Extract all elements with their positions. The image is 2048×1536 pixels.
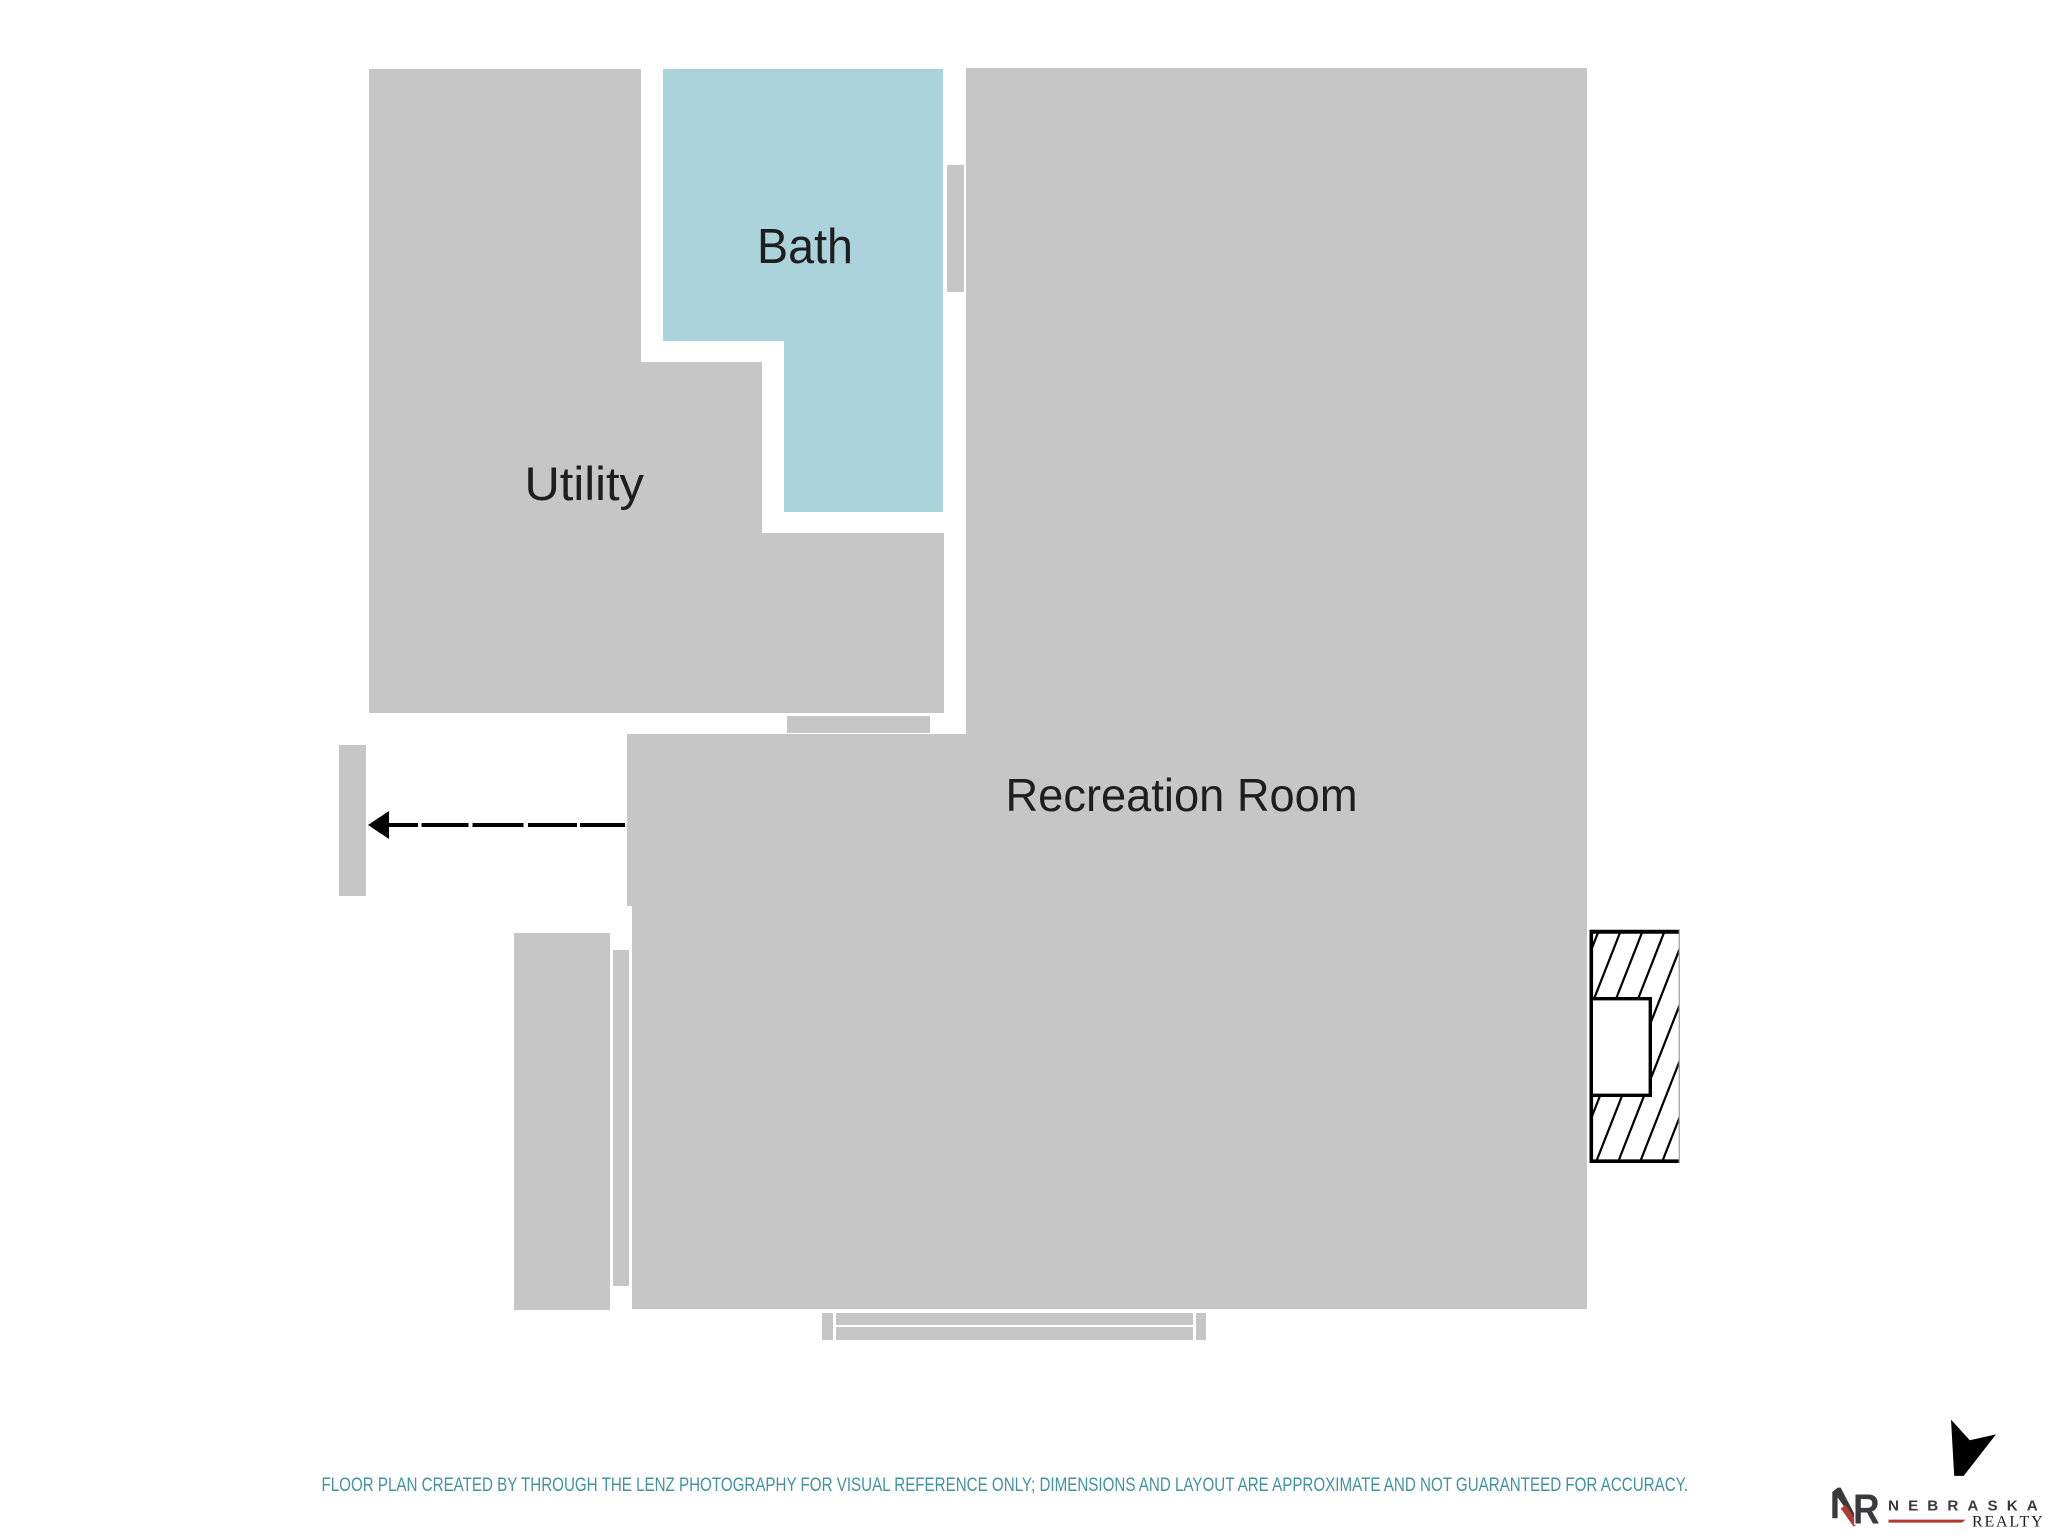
- svg-text:Utility: Utility: [525, 457, 645, 510]
- svg-text:Bath: Bath: [757, 220, 853, 274]
- svg-text:NEBRASKA: NEBRASKA: [1888, 1497, 2047, 1514]
- svg-text:REALTY: REALTY: [1972, 1513, 2044, 1530]
- svg-text:R: R: [1853, 1486, 1880, 1533]
- svg-text:FLOOR PLAN CREATED BY THROUGH: FLOOR PLAN CREATED BY THROUGH THE LENZ P…: [322, 1475, 1689, 1496]
- svg-text:Recreation Room: Recreation Room: [1006, 769, 1358, 821]
